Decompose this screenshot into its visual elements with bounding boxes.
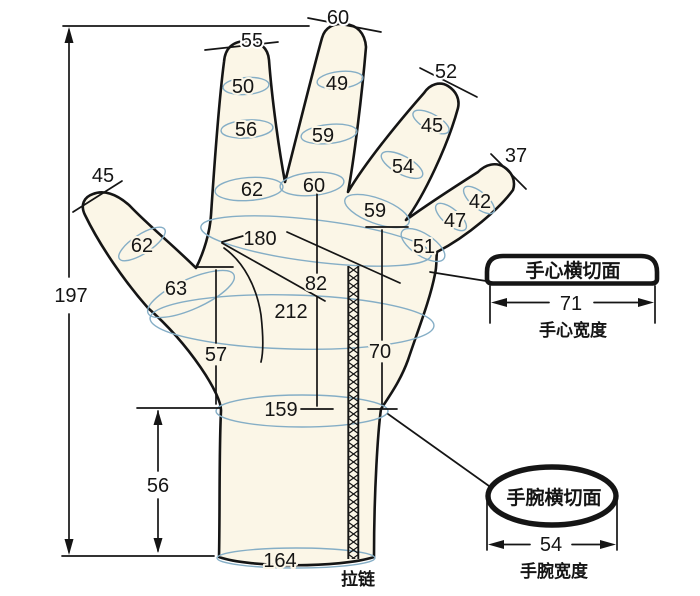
zipper-label: 拉链 <box>341 569 376 589</box>
label-knuckle-drop: 82 <box>305 273 327 295</box>
label-thumb-ring-1: 62 <box>131 235 153 257</box>
label-wrist-width: 54 <box>540 534 562 556</box>
arrow-up-icon <box>65 27 74 43</box>
label-wrist-line: 159 <box>264 399 297 421</box>
label-thumb-tip: 45 <box>92 165 114 187</box>
label-middle-ring-2: 59 <box>312 125 334 147</box>
arrow-up-icon <box>154 410 163 425</box>
arrow-down-icon <box>65 539 74 555</box>
label-ring-tip: 52 <box>435 61 457 83</box>
label-palm-left-height: 57 <box>205 344 227 366</box>
label-total-length: 197 <box>54 285 87 307</box>
label-middle-ring-3: 60 <box>303 175 325 197</box>
glove-measurement-diagram: 197 56 164 159 57 70 212 82 180 45 62 63… <box>0 0 700 596</box>
label-index-ring-3: 62 <box>241 179 263 201</box>
palm-section-leader <box>430 272 486 281</box>
palm-section-title: 手心横切面 <box>525 259 620 282</box>
label-cuff-height: 56 <box>147 475 169 497</box>
arrow-down-icon <box>154 538 163 553</box>
label-middle-tip: 60 <box>327 7 349 29</box>
label-pinky-ring-2: 47 <box>444 210 466 232</box>
arrow-right-icon <box>600 540 616 549</box>
label-index-ring-1: 50 <box>232 76 254 98</box>
label-pinky-ring-1: 42 <box>469 191 491 213</box>
label-knuckle-girth: 180 <box>243 228 276 250</box>
label-thumb-ring-2: 63 <box>165 278 187 300</box>
label-palm-right-height: 70 <box>369 341 391 363</box>
label-middle-ring-1: 49 <box>326 73 348 95</box>
label-palm-girth: 212 <box>274 301 307 323</box>
label-ring-ring-3: 59 <box>364 200 386 222</box>
label-pinky-tip: 37 <box>505 145 527 167</box>
label-index-ring-2: 56 <box>235 119 257 141</box>
diagram-canvas: 197 56 164 159 57 70 212 82 180 45 62 63… <box>0 0 700 596</box>
arrow-left-icon <box>488 540 504 549</box>
wrist-width-caption: 手腕宽度 <box>520 561 589 581</box>
label-ring-ring-2: 54 <box>392 156 414 178</box>
label-index-tip: 55 <box>241 30 263 52</box>
palm-width-caption: 手心宽度 <box>539 320 608 340</box>
wrist-section-leader <box>388 414 489 486</box>
arrow-right-icon <box>638 298 654 307</box>
wrist-section-title: 手腕横切面 <box>506 486 601 509</box>
label-palm-width: 71 <box>560 293 582 315</box>
arrow-left-icon <box>491 298 507 307</box>
zipper <box>348 266 359 559</box>
label-ring-ring-1: 45 <box>421 115 443 137</box>
label-pinky-ring-3: 51 <box>413 236 435 258</box>
label-cuff-bottom-width: 164 <box>263 550 296 572</box>
